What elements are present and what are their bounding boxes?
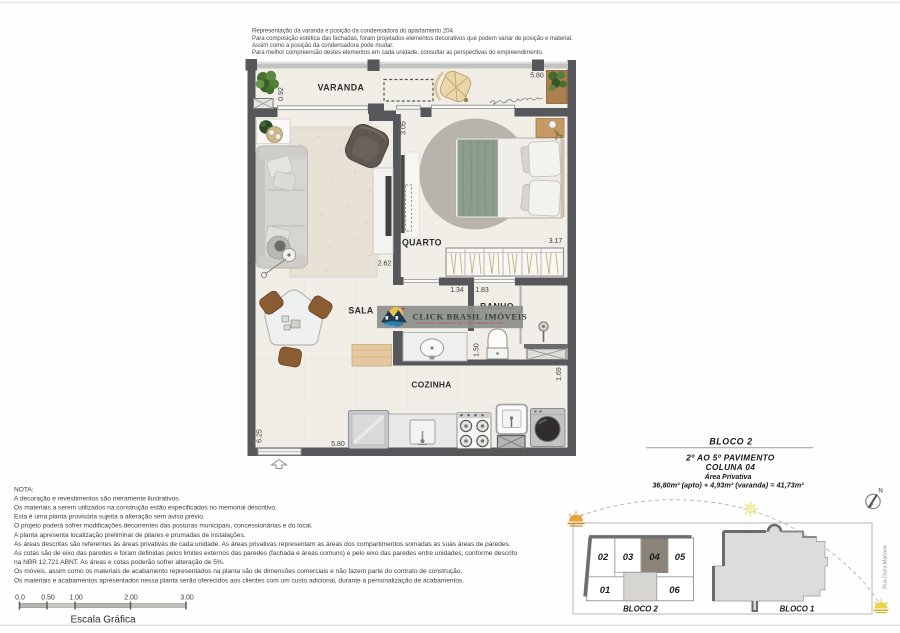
svg-text:VARANDA: VARANDA — [318, 83, 365, 93]
svg-text:2º AO 5º PAVIMENTO: 2º AO 5º PAVIMENTO — [685, 454, 775, 463]
svg-text:0.92: 0.92 — [278, 87, 285, 101]
svg-text:Os móveis, assim como os mater: Os móveis, assim como os materiais de ac… — [14, 568, 462, 575]
svg-text:N: N — [879, 489, 883, 495]
svg-text:Os materiais a serem utilizado: Os materiais a serem utilizados na const… — [14, 505, 277, 512]
svg-text:2.62: 2.62 — [378, 261, 392, 268]
svg-text:05: 05 — [675, 551, 686, 562]
svg-text:3.17: 3.17 — [549, 238, 563, 245]
svg-text:3.00: 3.00 — [180, 595, 194, 602]
svg-text:5.80: 5.80 — [530, 73, 544, 80]
svg-text:Para melhor compreensão destes: Para melhor compreensão destes elementos… — [252, 49, 544, 56]
svg-text:1.50: 1.50 — [474, 343, 481, 357]
svg-text:COZINHA: COZINHA — [411, 380, 451, 390]
svg-text:Rua Dona Mariana: Rua Dona Mariana — [883, 545, 889, 589]
svg-text:As cotas são de eixo das pared: As cotas são de eixo das paredes e foram… — [14, 550, 518, 557]
svg-text:Representação da varanda e pos: Representação da varanda e posição da co… — [252, 27, 455, 34]
svg-text:02: 02 — [598, 551, 609, 562]
svg-text:BLOCO 2: BLOCO 2 — [623, 605, 658, 614]
svg-text:SALA: SALA — [348, 306, 373, 316]
svg-text:A planta apresenta localização: A planta apresenta localização prelimina… — [14, 532, 246, 539]
svg-text:Escala Gráfica: Escala Gráfica — [70, 615, 135, 626]
svg-text:1.83: 1.83 — [475, 287, 489, 294]
svg-text:03: 03 — [623, 551, 634, 562]
svg-text:1.34: 1.34 — [450, 287, 464, 294]
svg-text:1.69: 1.69 — [556, 367, 563, 381]
svg-text:O projeto poderá sofrer modifi: O projeto poderá sofrer modificações dec… — [14, 523, 313, 530]
svg-text:QUARTO: QUARTO — [402, 238, 442, 248]
svg-text:Esta é uma planta provisória s: Esta é uma planta provisória sujeita a a… — [14, 514, 205, 521]
svg-text:BLOCO 1: BLOCO 1 — [780, 605, 815, 614]
svg-text:01: 01 — [600, 584, 610, 595]
svg-text:3.05: 3.05 — [401, 121, 408, 135]
svg-text:Para composição estética das f: Para composição estética das fachadas, f… — [252, 35, 573, 42]
svg-text:Os materiais e acabamentos apr: Os materiais e acabamentos apresentados … — [14, 577, 464, 584]
svg-text:2.00: 2.00 — [124, 595, 138, 602]
svg-text:0.0: 0.0 — [15, 595, 25, 602]
svg-text:04: 04 — [649, 551, 660, 562]
svg-text:As áreas descritas são referen: As áreas descritas são referentes às áre… — [14, 541, 511, 548]
svg-text:na NBR 12.721 ABNT. As áreas e: na NBR 12.721 ABNT. As áreas e cotas pod… — [14, 559, 225, 566]
svg-text:COLUNA 04: COLUNA 04 — [706, 463, 756, 472]
svg-text:BLOCO 2: BLOCO 2 — [709, 437, 752, 447]
svg-text:Assim como a posição da conden: Assim como a posição da condensadora pod… — [252, 42, 394, 49]
svg-text:36,80m² (apto) + 4,93m² (varan: 36,80m² (apto) + 4,93m² (varanda) = 41,7… — [652, 481, 804, 490]
svg-text:6.25: 6.25 — [257, 429, 264, 443]
svg-text:UM PORTAL IMOBILIARIO DE QUEM: UM PORTAL IMOBILIARIO DE QUEM SABE DE IM… — [416, 321, 503, 325]
svg-text:1.00: 1.00 — [69, 595, 83, 602]
svg-text:A decoração e revestimentos sã: A decoração e revestimentos são merament… — [14, 495, 181, 502]
svg-text:CLICK BRASIL IMÓVEIS: CLICK BRASIL IMÓVEIS — [413, 311, 528, 321]
svg-text:NOTA:: NOTA: — [14, 486, 34, 493]
svg-text:06: 06 — [669, 584, 680, 595]
svg-text:0.50: 0.50 — [41, 595, 55, 602]
svg-text:5.80: 5.80 — [331, 441, 345, 448]
